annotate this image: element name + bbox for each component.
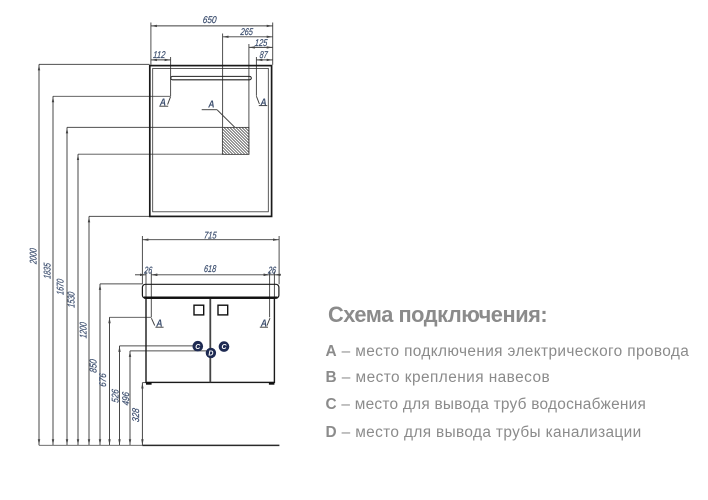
svg-text:1835: 1835 xyxy=(41,262,52,279)
svg-text:676: 676 xyxy=(97,373,108,388)
svg-text:1670: 1670 xyxy=(54,278,65,295)
svg-text:850: 850 xyxy=(88,358,99,373)
svg-text:A: A xyxy=(207,99,214,111)
svg-text:2000: 2000 xyxy=(27,247,38,265)
svg-text:A: A xyxy=(260,318,267,330)
svg-text:650: 650 xyxy=(202,14,217,25)
svg-text:265: 265 xyxy=(239,26,253,37)
svg-text:A: A xyxy=(259,97,266,109)
svg-text:87: 87 xyxy=(259,49,269,60)
svg-text:26: 26 xyxy=(267,264,277,275)
svg-text:526: 526 xyxy=(110,388,121,403)
svg-text:D: D xyxy=(208,351,213,358)
svg-text:1200: 1200 xyxy=(78,321,89,338)
svg-text:125: 125 xyxy=(254,37,268,48)
svg-text:A: A xyxy=(159,97,166,109)
svg-text:26: 26 xyxy=(143,264,153,275)
svg-text:618: 618 xyxy=(204,263,217,274)
svg-text:A: A xyxy=(155,318,162,330)
svg-text:496: 496 xyxy=(120,391,131,406)
svg-text:112: 112 xyxy=(153,49,166,60)
svg-text:715: 715 xyxy=(203,229,217,240)
svg-text:328: 328 xyxy=(131,407,142,422)
svg-text:1530: 1530 xyxy=(65,291,76,308)
